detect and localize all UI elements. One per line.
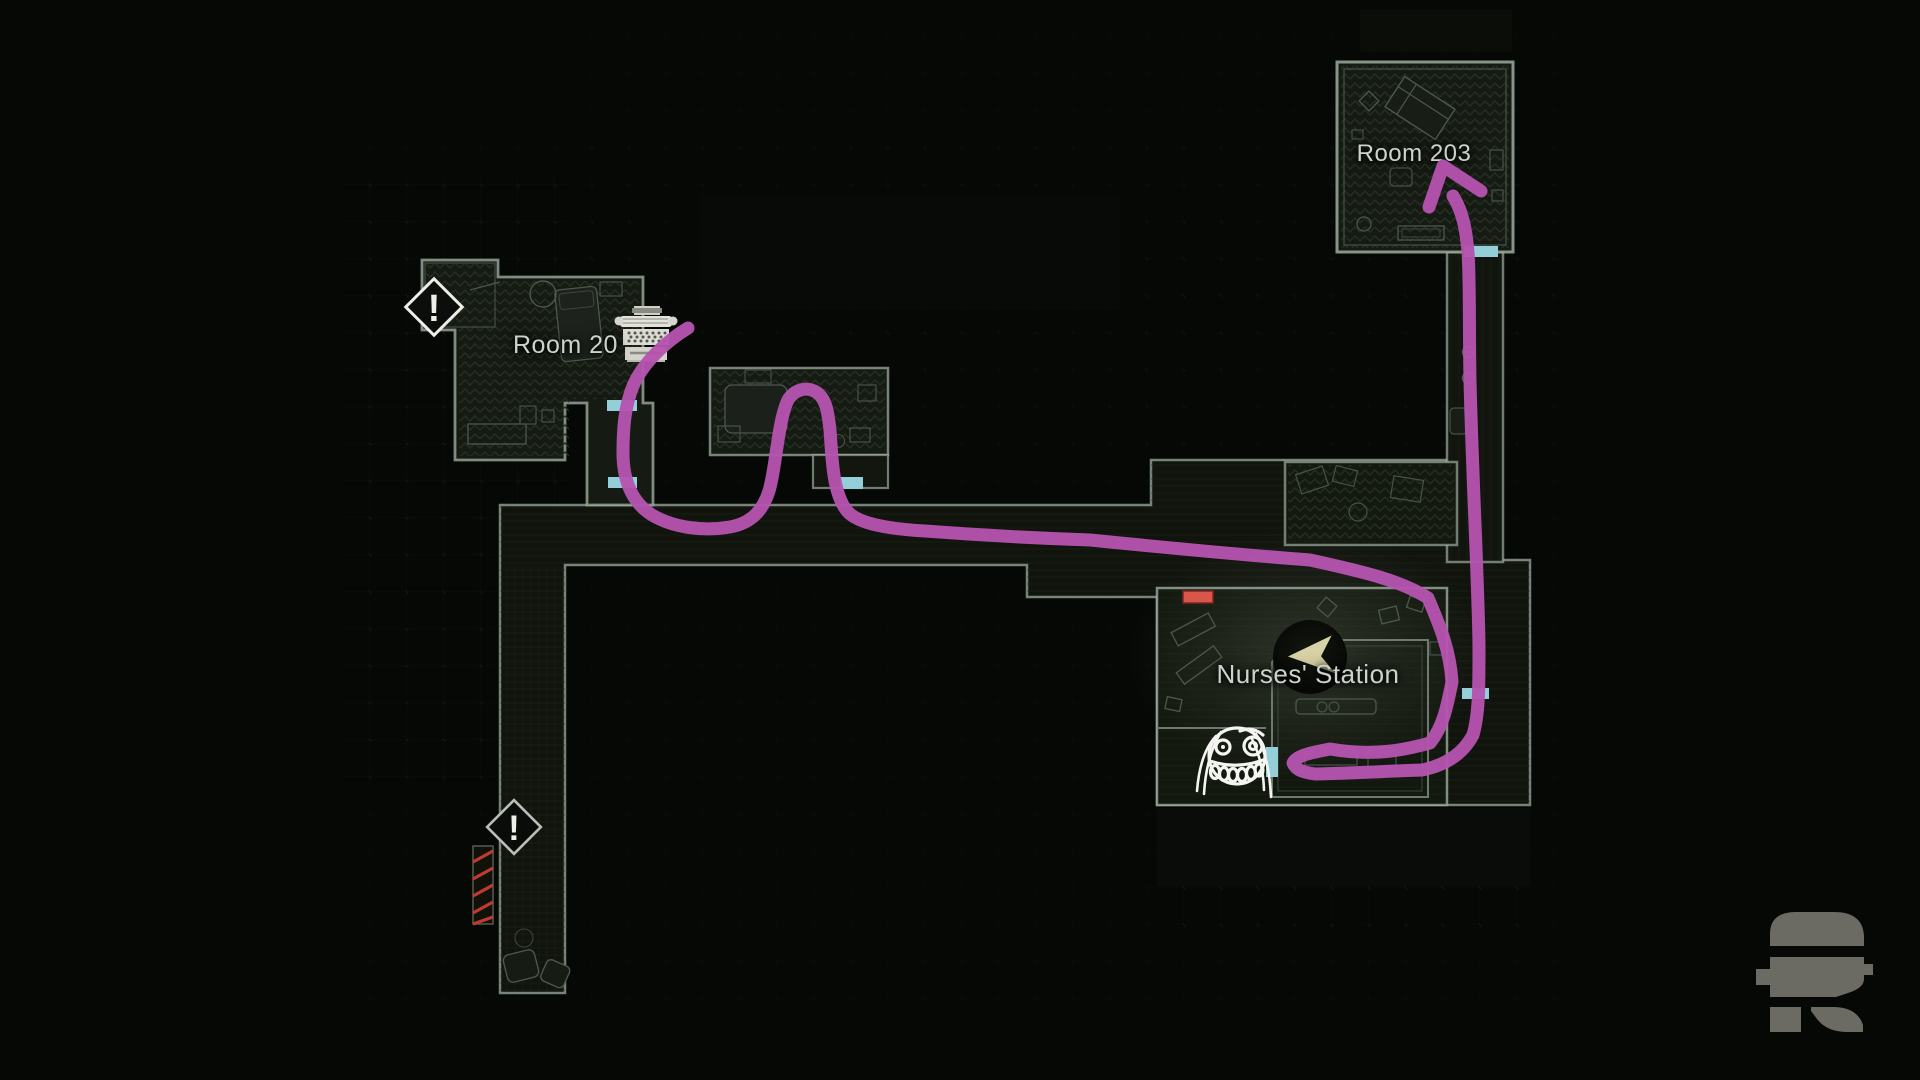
hazard-stripes-marker: [473, 846, 493, 924]
hospital-map[interactable]: ! ! Room 203 Room 20 Nurses' Station: [0, 0, 1920, 1080]
room-202-label: Room 20: [513, 331, 618, 359]
door-middle-room: [840, 477, 863, 489]
alert-glyph: !: [428, 288, 441, 330]
item-marker: [1183, 591, 1213, 603]
game-screen: { "screen": { "kind": "in-game hospital …: [0, 0, 1920, 1080]
alert-glyph: !: [508, 809, 520, 848]
stylized-R-logo-icon: [1756, 912, 1873, 1032]
room-203-label: Room 203: [1357, 140, 1472, 167]
nurses-station-label: Nurses' Station: [1217, 659, 1400, 689]
